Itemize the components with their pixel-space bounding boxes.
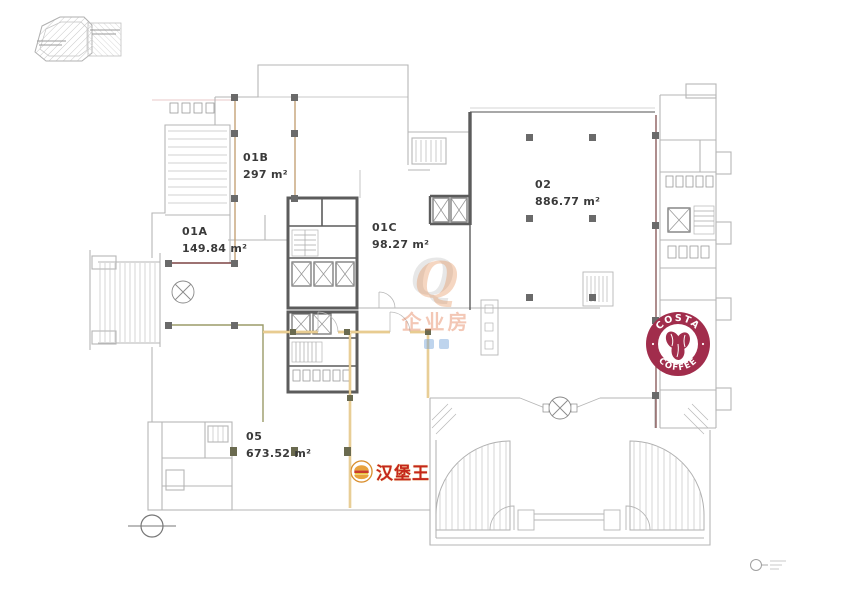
room-area: 673.52 m² xyxy=(246,448,311,459)
fan-stair-left-icon xyxy=(436,440,510,530)
toilet-fixture-icons xyxy=(170,103,713,381)
section-mark-symbol xyxy=(128,515,176,537)
room-number: 02 xyxy=(535,179,600,190)
room-area: 297 m² xyxy=(243,169,288,180)
lease-boundary-olive xyxy=(168,325,263,422)
room-number: 05 xyxy=(246,431,311,442)
room-number: 01C xyxy=(372,222,429,233)
room-label-01b: 01B 297 m² xyxy=(243,152,288,180)
room-area: 149.84 m² xyxy=(182,243,247,254)
room-number: 01A xyxy=(182,226,247,237)
core-walls xyxy=(288,112,470,392)
stair-icon-right xyxy=(694,206,714,234)
burger-king-logo: 汉堡王 xyxy=(350,459,430,484)
floor-plan-drawing xyxy=(0,0,846,600)
escalator-icon xyxy=(100,263,155,342)
room-label-01a: 01A 149.84 m² xyxy=(182,226,247,254)
burger-icon xyxy=(350,460,373,483)
room-label-02: 02 886.77 m² xyxy=(535,179,600,207)
room-label-01c: 01C 98.27 m² xyxy=(372,222,429,250)
floor-plan-page: 01A 149.84 m² 01B 297 m² 01C 98.27 m² 02… xyxy=(0,0,846,600)
room-label-05: 05 673.52 m² xyxy=(246,431,311,459)
revolving-door-icon-main xyxy=(543,397,577,419)
elevator-icons xyxy=(292,198,690,334)
fan-stair-right-icon xyxy=(630,440,704,530)
costa-coffee-logo: COSTA COFFEE xyxy=(644,310,712,378)
room-number: 01B xyxy=(243,152,288,163)
revolving-door-icon-left xyxy=(172,281,194,303)
stair-icon-core xyxy=(292,230,322,362)
room-area: 98.27 m² xyxy=(372,239,429,250)
room-area: 886.77 m² xyxy=(535,196,600,207)
burger-king-text: 汉堡王 xyxy=(376,459,430,484)
key-plan-inset xyxy=(35,17,121,61)
scale-note-symbol xyxy=(751,560,787,571)
plaza-steps xyxy=(490,506,650,530)
